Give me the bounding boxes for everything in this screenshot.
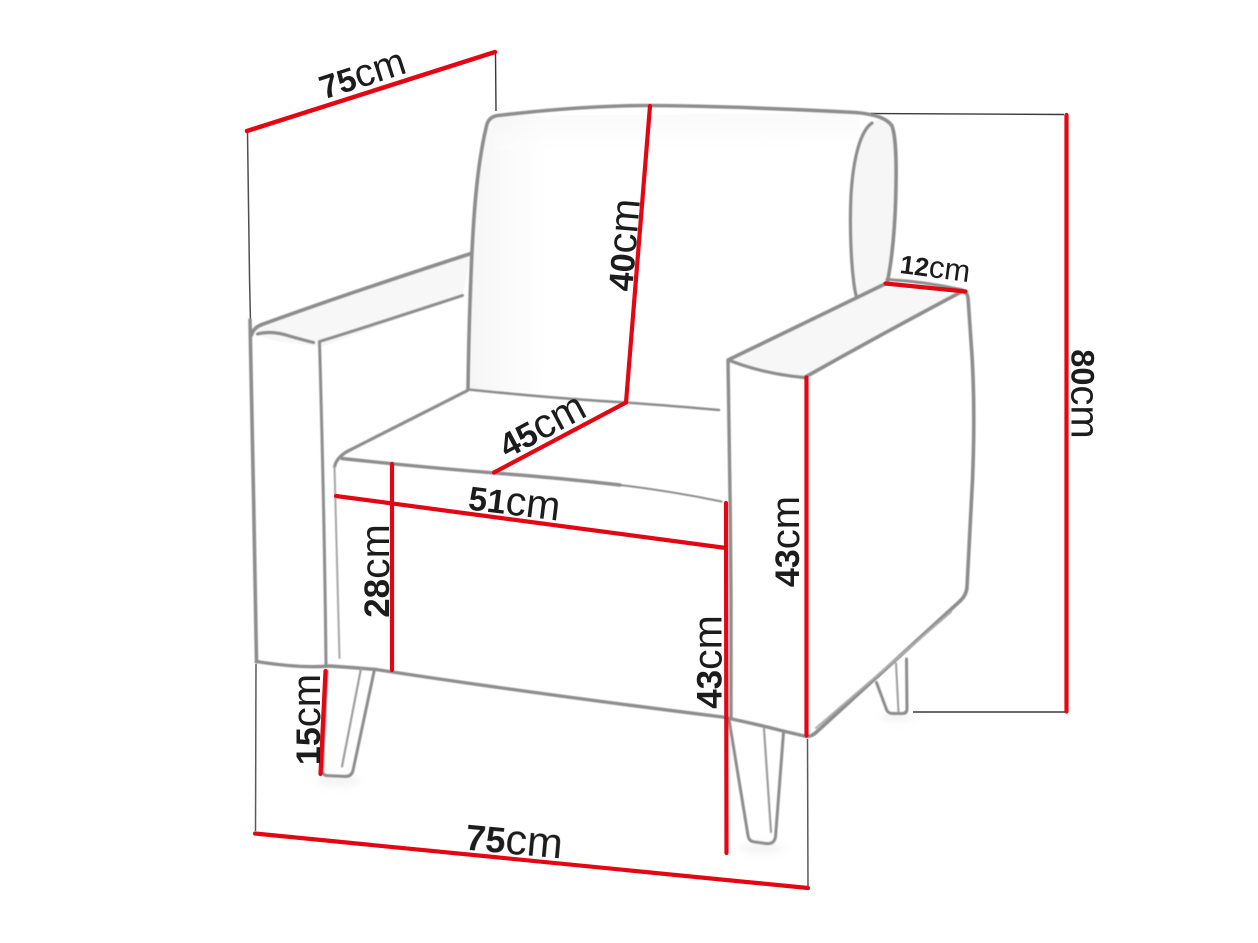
svg-text:80cm: 80cm xyxy=(1063,349,1107,438)
svg-text:43cm: 43cm xyxy=(764,496,808,587)
svg-text:75cm: 75cm xyxy=(313,40,411,108)
svg-text:40cm: 40cm xyxy=(595,197,649,293)
svg-text:75cm: 75cm xyxy=(464,812,565,869)
svg-text:15cm: 15cm xyxy=(285,674,329,765)
svg-text:51cm: 51cm xyxy=(466,473,563,530)
svg-text:43cm: 43cm xyxy=(685,615,731,709)
svg-text:28cm: 28cm xyxy=(352,524,398,618)
